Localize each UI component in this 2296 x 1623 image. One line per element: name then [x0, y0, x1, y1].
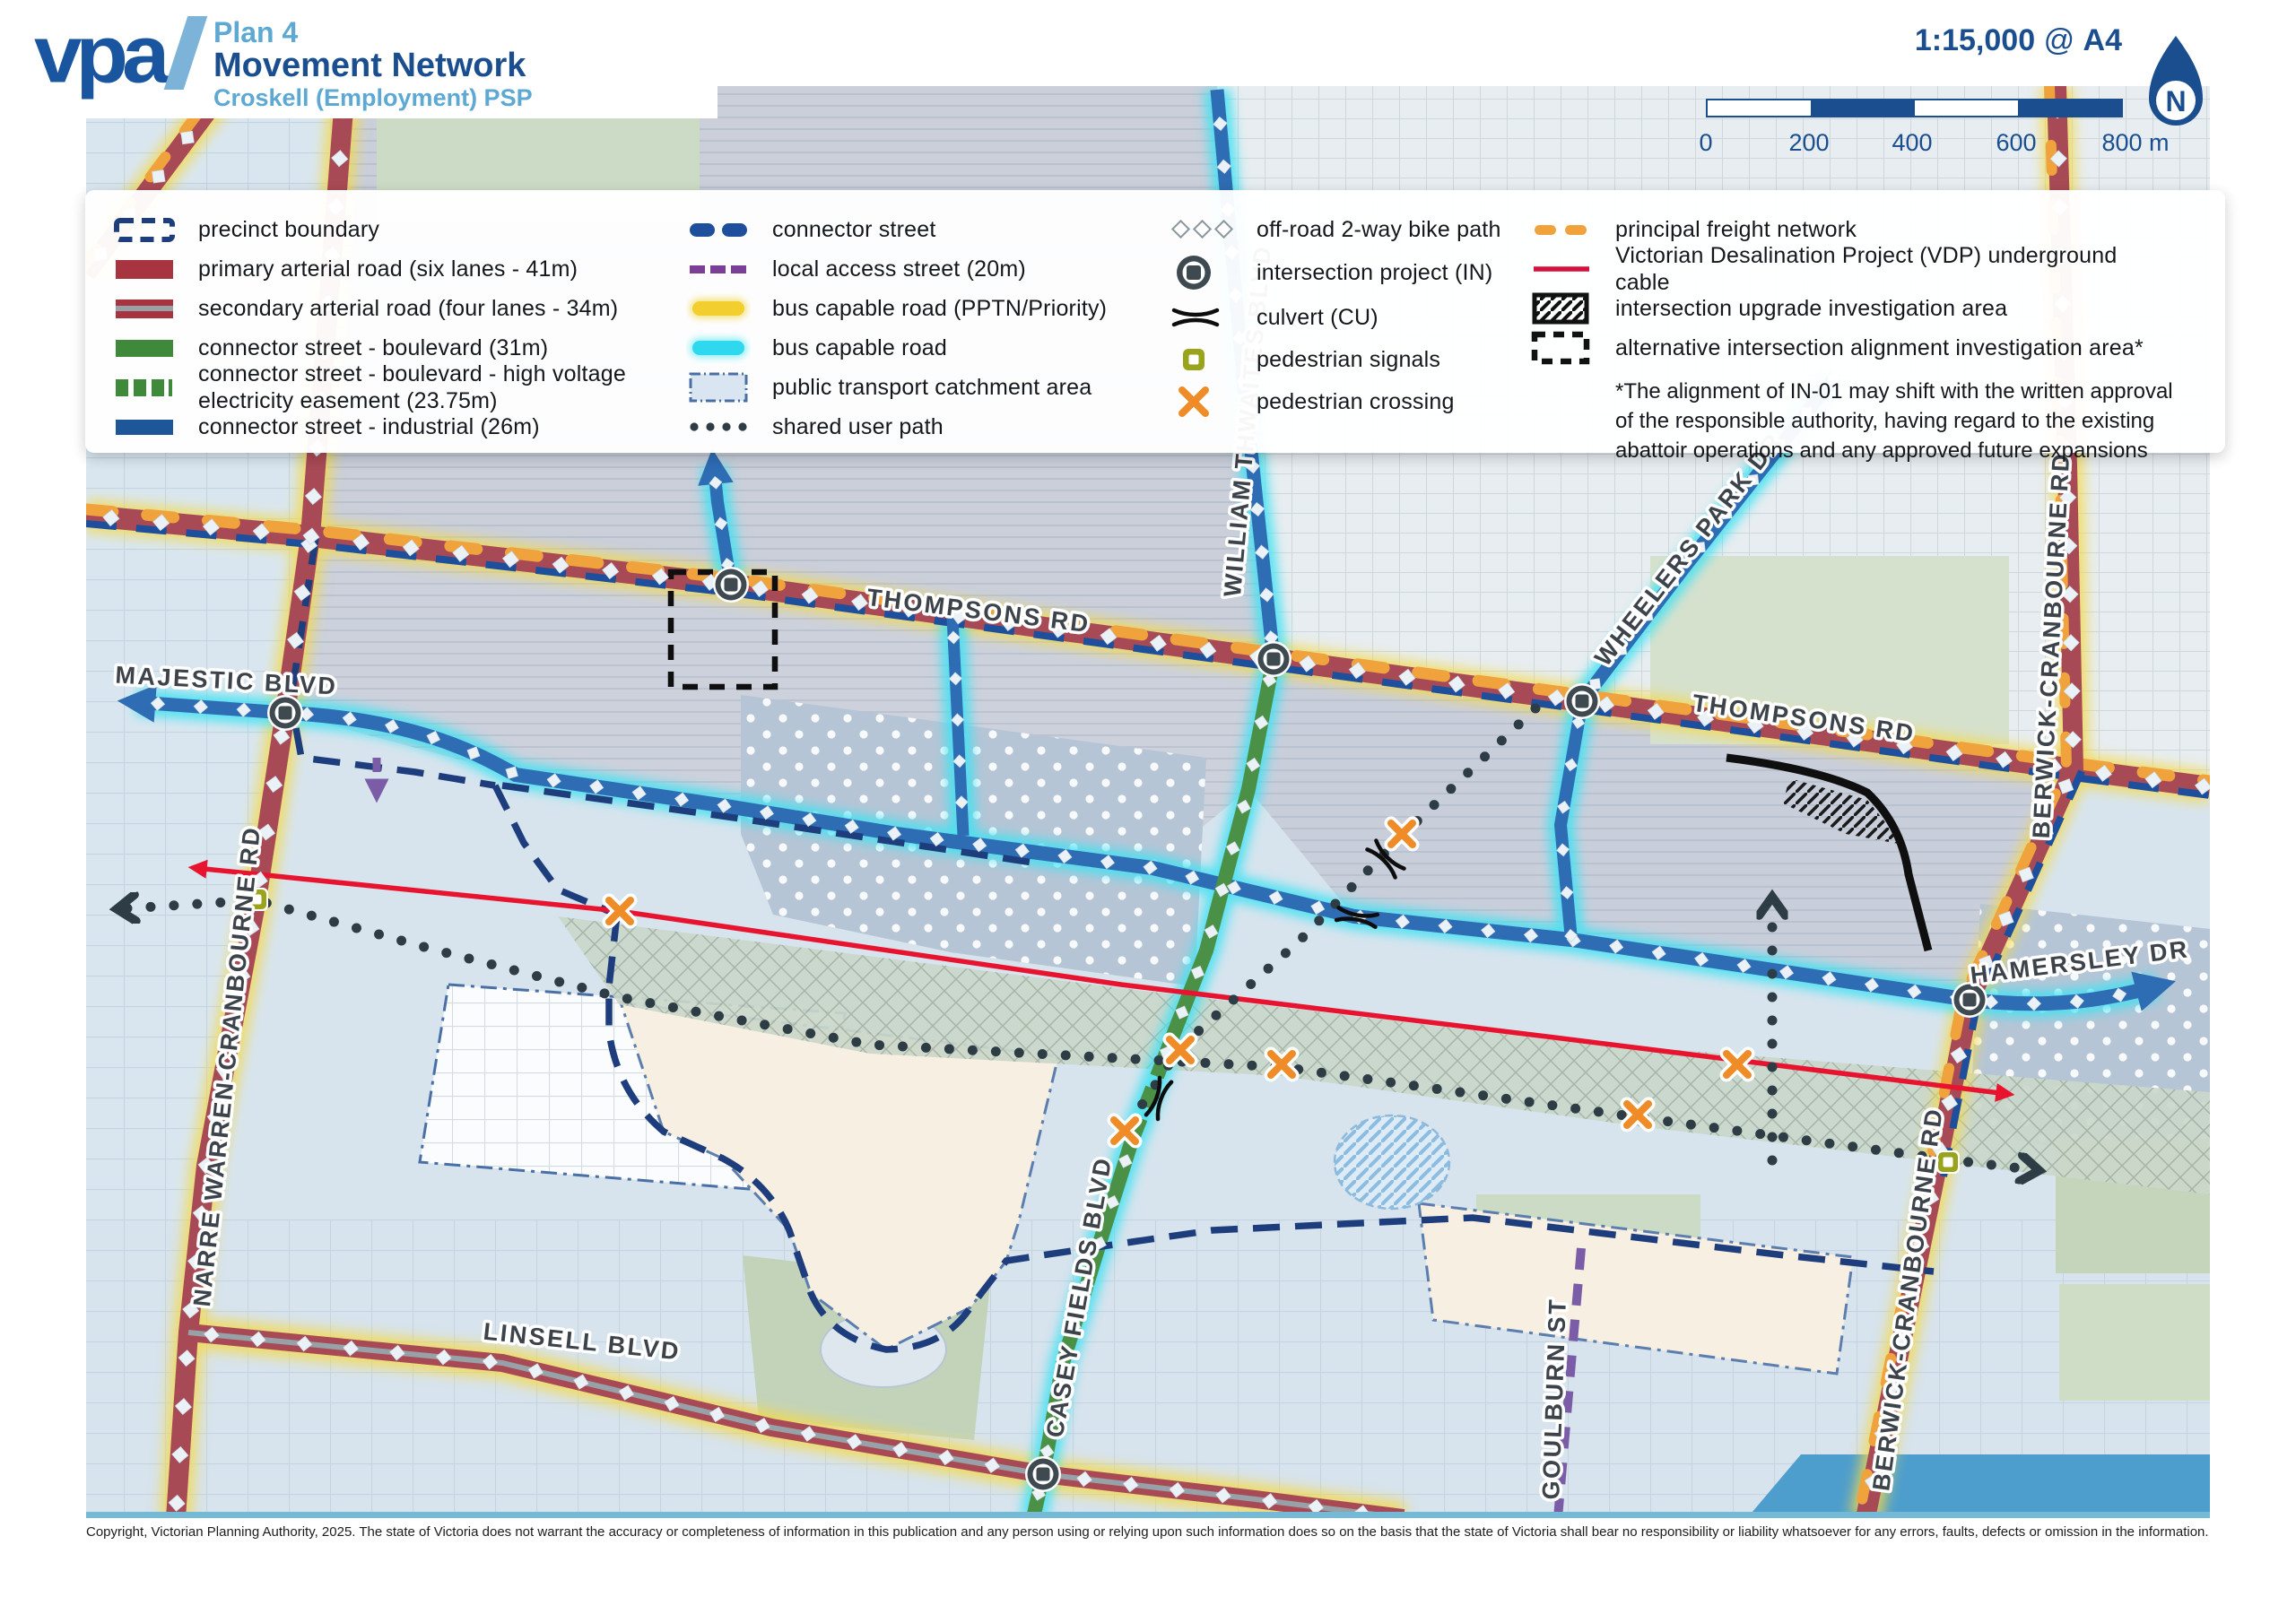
vpa-logo: vpa: [34, 8, 163, 102]
north-arrow: N: [2131, 29, 2221, 172]
legend-connector-industrial: connector street - industrial (26m): [112, 411, 686, 443]
plan-page: MAJESTIC BLVD THOMPSONS RD THOMPSONS RD …: [0, 0, 2296, 1623]
map-bottom-edge: [86, 1512, 2210, 1518]
local-access-swatch: [686, 254, 772, 284]
connector-boulevard-swatch: [112, 333, 198, 363]
water-body: [1747, 1454, 2210, 1518]
legend-intersection-project: intersection project (IN): [1170, 253, 1529, 292]
secondary-arterial-swatch: [112, 293, 198, 324]
intersection-project-marker: [1256, 641, 1291, 677]
primary-arterial-swatch: [112, 254, 198, 284]
pedestrian-crossing-marker: [1170, 1039, 1191, 1061]
copyright-text: Copyright, Victorian Planning Authority,…: [86, 1524, 2210, 1540]
legend-secondary-arterial: secondary arterial road (four lanes - 34…: [112, 292, 686, 325]
pedestrian-crossing-marker: [1627, 1104, 1648, 1125]
bus-capable-swatch: [686, 331, 772, 365]
pond-hatched: [1335, 1115, 1449, 1209]
intersection-project-swatch: [1170, 253, 1257, 292]
legend-bus-capable: bus capable road: [686, 332, 1170, 364]
legend-local-access: local access street (20m): [686, 253, 1170, 285]
scale-tick: 600: [1996, 129, 2036, 157]
legend-primary-arterial: primary arterial road (six lanes - 41m): [112, 253, 686, 285]
scale-bar: [1706, 99, 2123, 117]
intersection-project-marker: [1025, 1456, 1061, 1492]
legend-precinct-boundary: precinct boundary: [112, 213, 686, 246]
legend-pt-catchment: public transport catchment area: [686, 371, 1170, 404]
legend-alt-alignment: alternative intersection alignment inves…: [1529, 332, 2198, 364]
pedestrian-crossing-marker: [1114, 1120, 1135, 1141]
title-block: vpa Plan 4 Movement Network Croskell (Em…: [0, 0, 717, 118]
bike-path-swatch: [1170, 214, 1257, 245]
alt-alignment-swatch: [1529, 329, 1615, 367]
legend-connector-street: connector street: [686, 213, 1170, 246]
shared-user-path-swatch: [686, 412, 772, 442]
pedestrian-crossing-marker: [1271, 1054, 1292, 1075]
legend-bike-path: off-road 2-way bike path: [1170, 213, 1529, 246]
intersection-project-marker: [713, 567, 749, 603]
legend-connector-boulevard-hv: connector street - boulevard - high volt…: [112, 371, 686, 404]
intersection-project-marker: [1564, 683, 1600, 719]
intersection-upgrade-swatch: [1529, 290, 1615, 327]
pedestrian-crossing-marker: [1391, 823, 1413, 845]
legend-pedestrian-signals: pedestrian signals: [1170, 343, 1529, 377]
page-subtitle: Croskell (Employment) PSP: [213, 84, 533, 112]
legend-vdp-cable: Victorian Desalination Project (VDP) und…: [1529, 253, 2198, 285]
scale-ratio: 1:15,000 @ A4: [1915, 23, 2122, 58]
connector-street-swatch: [686, 214, 772, 245]
legend-intersection-upgrade: intersection upgrade investigation area: [1529, 292, 2198, 325]
scale-tick: 200: [1788, 129, 1829, 157]
north-label: N: [2165, 85, 2186, 117]
legend-panel: precinct boundary primary arterial road …: [85, 190, 2225, 453]
legend-bus-pptn: bus capable road (PPTN/Priority): [686, 292, 1170, 325]
legend-shared-user-path: shared user path: [686, 411, 1170, 443]
pedestrian-crossing-marker: [1726, 1054, 1748, 1075]
pedestrian-crossing-swatch: [1170, 384, 1257, 420]
page-title: Movement Network: [213, 47, 526, 85]
scale-tick: 400: [1892, 129, 1932, 157]
pedestrian-crossing-marker: [609, 900, 631, 922]
logo-slash-icon: [164, 16, 208, 90]
culvert-swatch: [1170, 299, 1257, 335]
intersection-project-marker: [267, 695, 303, 731]
connector-boulevard-hv-swatch: [112, 372, 198, 403]
legend-footnote: *The alignment of IN-01 may shift with t…: [1615, 377, 2189, 465]
connector-industrial-swatch: [112, 412, 198, 442]
plan-number: Plan 4: [213, 16, 298, 49]
scale-tick: 0: [1699, 129, 1712, 157]
precinct-boundary-swatch: [112, 214, 198, 245]
freight-network-swatch: [1529, 216, 1615, 243]
vdp-cable-swatch: [1529, 258, 1615, 280]
legend-pedestrian-crossing: pedestrian crossing: [1170, 384, 1529, 420]
scale-area: 1:15,000 @ A4 0 200 400 600 800 m N: [1683, 9, 2221, 170]
pedestrian-signals-swatch: [1170, 343, 1257, 377]
pt-catchment-swatch: [686, 369, 772, 405]
legend-culvert: culvert (CU): [1170, 299, 1529, 335]
bus-pptn-swatch: [686, 291, 772, 325]
